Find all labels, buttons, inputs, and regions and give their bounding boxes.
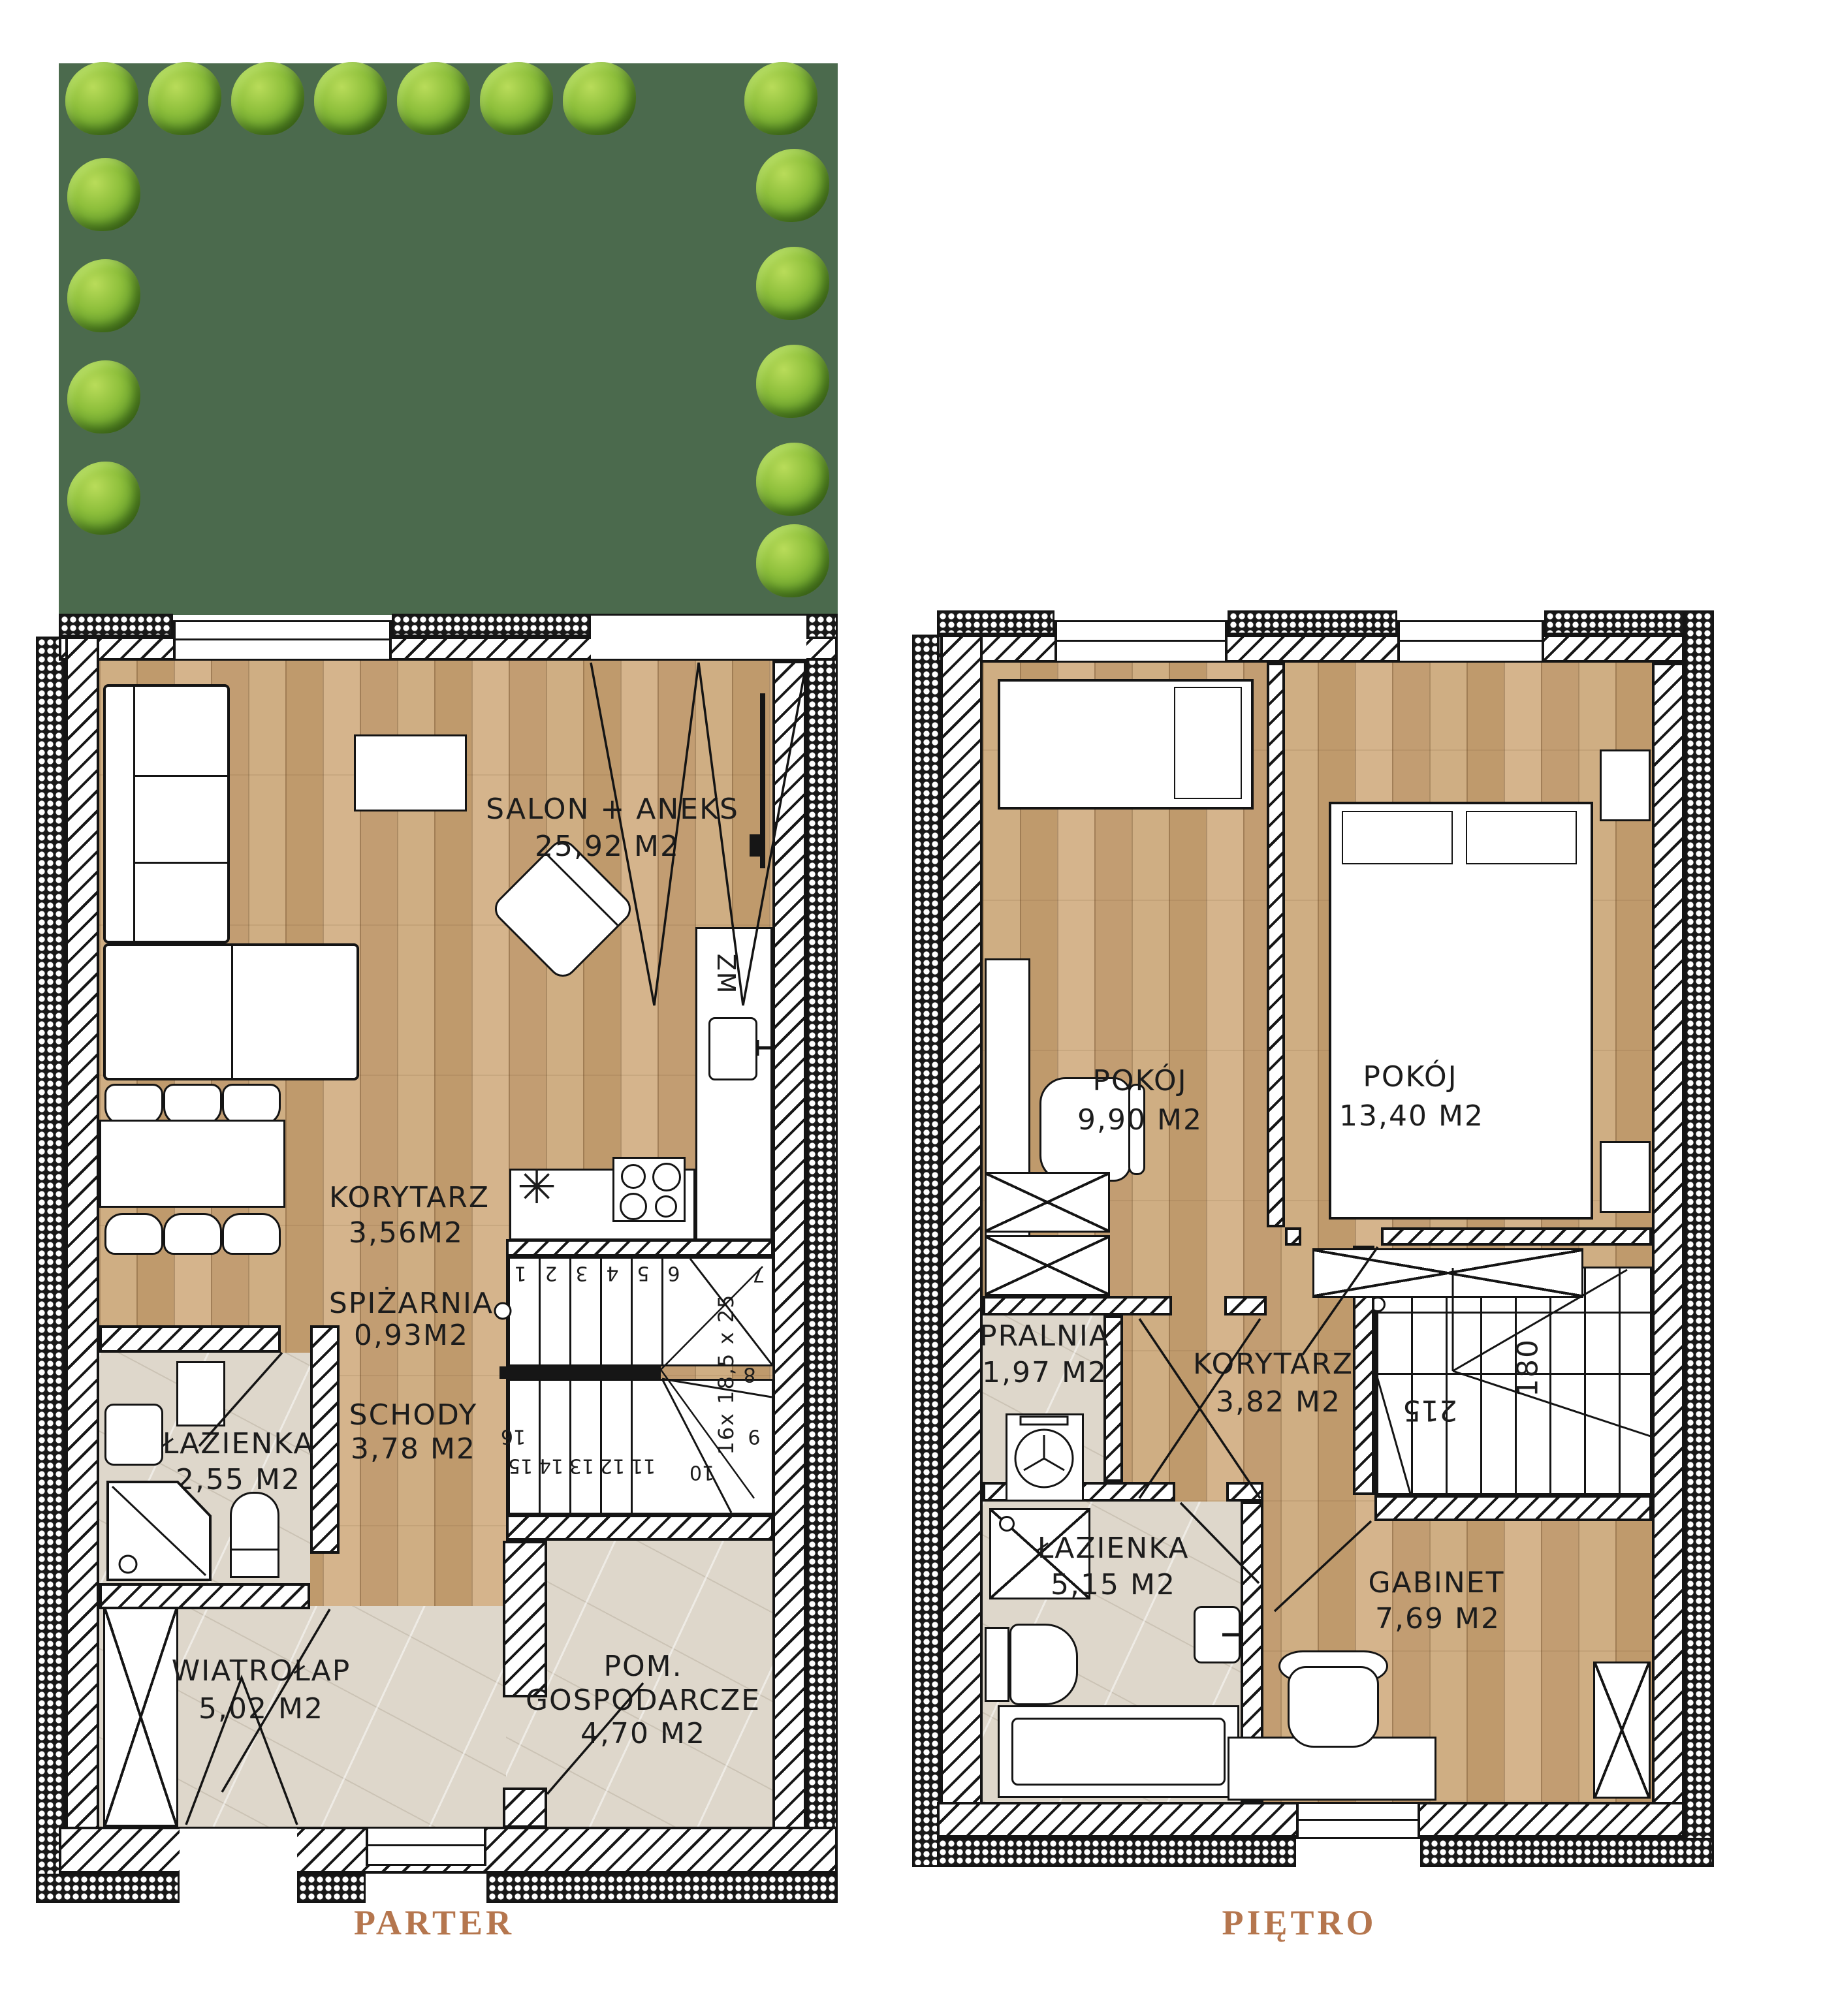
garden-bush — [231, 62, 304, 135]
fridge-symbol-icon: ✳ — [517, 1159, 556, 1214]
room-area-wiatrolap: 5,02 M2 — [198, 1695, 324, 1724]
garden-bush — [67, 158, 140, 231]
garden-bush — [67, 360, 140, 433]
room-area-pokoj1: 9,90 M2 — [1077, 1106, 1203, 1135]
burner-icon — [652, 1163, 681, 1191]
bathtub — [998, 1705, 1239, 1798]
stair-step-number: 1 — [514, 1262, 526, 1285]
garden-bush — [563, 62, 636, 135]
tv-bracket — [750, 834, 760, 857]
room-label-lazienka: ŁAZIENKA — [163, 1430, 315, 1458]
dining-chair — [163, 1213, 222, 1255]
insulation-bottom — [36, 1874, 180, 1903]
staircase-lower-run — [506, 1379, 661, 1515]
garden-bush — [148, 62, 221, 135]
room-label-lazienka2: ŁAZIENKA — [1038, 1534, 1190, 1563]
window-bottom-parter — [366, 1827, 486, 1866]
insulation-top — [1228, 610, 1397, 635]
stair-step-number: 13 — [569, 1455, 594, 1477]
toilet-bowl — [1009, 1624, 1078, 1705]
insulation-right — [806, 614, 838, 1903]
garden-bush — [756, 247, 829, 320]
wall-pokoj1-bottom — [983, 1296, 1172, 1315]
kitchen-stove — [612, 1157, 686, 1222]
toilet-bowl — [230, 1492, 279, 1554]
wardrobe — [1593, 1662, 1651, 1799]
window-top-pokoj1 — [1054, 620, 1228, 663]
room-area-pom: 4,70 M2 — [580, 1720, 706, 1748]
stair-step-number: 11 — [631, 1455, 656, 1477]
garden-bush — [397, 62, 470, 135]
room-label-wiatrolap: WIATROŁAP — [172, 1657, 351, 1686]
garden-bush — [67, 462, 140, 535]
stair-step-number: 12 — [600, 1455, 625, 1477]
office-chair-seat — [1288, 1666, 1379, 1748]
wall-pomgosp-left — [503, 1541, 547, 1697]
bathroom-cabinet — [176, 1361, 225, 1426]
garden-bush — [756, 149, 829, 222]
stair-step-number: 6 — [667, 1262, 680, 1285]
stair-line — [1376, 1312, 1650, 1314]
room-label-pralnia: PRALNIA — [979, 1322, 1110, 1351]
bathtub-inner — [1011, 1718, 1226, 1786]
sofa — [103, 684, 230, 943]
insulation-bottom — [486, 1874, 838, 1903]
garden-bush — [480, 62, 553, 135]
room-area-gabinet: 7,69 M2 — [1375, 1605, 1500, 1633]
room-label-pokoj2: POKÓJ — [1363, 1063, 1457, 1092]
stair-step-number: 3 — [575, 1262, 588, 1285]
insulation-right — [1685, 610, 1714, 1867]
wall-lazienka-top — [1226, 1482, 1263, 1502]
wall-gabinet-top — [1374, 1495, 1652, 1521]
exterior-wall-right — [1652, 663, 1685, 1838]
room-area-pralnia: 1,97 M2 — [982, 1359, 1107, 1387]
chaise-line — [231, 946, 233, 1078]
stair-step-number: 5 — [637, 1262, 649, 1285]
room-label-gabinet: GABINET — [1369, 1569, 1505, 1598]
single-bed — [998, 679, 1254, 810]
garden-area — [59, 63, 838, 615]
entrance-door-opening — [180, 1827, 297, 1874]
burner-icon — [621, 1164, 646, 1189]
room-label-schody: SCHODY — [349, 1401, 478, 1430]
coffee-table — [354, 734, 467, 811]
stair-step-number: 15 — [508, 1455, 533, 1477]
burner-icon — [655, 1195, 677, 1218]
insulation-bottom — [297, 1874, 366, 1903]
nightstand — [1600, 1141, 1651, 1213]
garden-bush — [67, 259, 140, 332]
garden-bush — [756, 443, 829, 516]
room-area-schody: 3,78 M2 — [351, 1435, 476, 1464]
stair-step-number: 2 — [545, 1262, 557, 1285]
wardrobe — [103, 1607, 178, 1827]
insulation-bottom — [937, 1838, 1296, 1867]
tv-icon — [760, 693, 765, 868]
stair-headroom-label: 215 — [1403, 1394, 1457, 1427]
pillow — [1342, 811, 1453, 864]
exterior-wall-top — [937, 635, 1685, 663]
exterior-wall-left — [940, 635, 983, 1838]
wall-room-divider — [1267, 663, 1285, 1227]
room-label-pom1: POM. — [603, 1652, 682, 1681]
wall-pokoj1-bottom — [1224, 1296, 1267, 1315]
wall-bathroom-bottom — [99, 1583, 310, 1609]
room-area-lazienka2: 5,15 M2 — [1051, 1571, 1176, 1599]
room-area-korytarz: 3,56M2 — [349, 1219, 464, 1248]
insulation-left — [912, 635, 940, 1867]
dining-chair — [104, 1213, 163, 1255]
window-bottom-pietro — [1296, 1802, 1420, 1839]
garden-bush — [756, 345, 829, 418]
wall-pokoj2-bottom-stub — [1285, 1227, 1301, 1246]
pillow — [1174, 687, 1242, 799]
washbasin — [1194, 1606, 1241, 1663]
insulation-left — [36, 637, 65, 1903]
stair-step-number: 14 — [539, 1455, 563, 1477]
room-area-pokoj2: 13,40 M2 — [1339, 1102, 1484, 1131]
stair-step-number: 4 — [606, 1262, 618, 1285]
window-top-pokoj2 — [1397, 620, 1544, 663]
room-area-lazienka: 2,55 M2 — [176, 1466, 301, 1494]
insulation-top — [59, 614, 173, 637]
stair-step-number: 9 — [748, 1425, 760, 1448]
staircase-divider — [499, 1366, 661, 1379]
wardrobe — [985, 1235, 1110, 1296]
insulation-bottom — [1420, 1838, 1714, 1867]
washbasin — [104, 1404, 163, 1466]
terrace-door-opening — [591, 614, 806, 661]
room-label-pom2: GOSPODARCZE — [526, 1686, 761, 1715]
wall-stairs-bottom — [506, 1515, 774, 1541]
double-bed — [1329, 802, 1593, 1220]
room-label-korytarz2: KORYTARZ — [1193, 1350, 1354, 1379]
sofa-cushion-line — [133, 775, 228, 777]
room-area-salon: 25,92 M2 — [535, 832, 680, 861]
stair-step-number: 16 — [501, 1425, 526, 1448]
wall-stairs-top — [506, 1239, 774, 1257]
window-top-parter — [173, 620, 392, 661]
floor-title-parter: PARTER — [354, 1902, 515, 1943]
wall-bathroom-right — [310, 1325, 340, 1554]
dining-chair — [222, 1213, 281, 1255]
floor-title-pietro: PIĘTRO — [1222, 1902, 1376, 1943]
room-label-korytarz: KORYTARZ — [329, 1184, 490, 1212]
room-area-korytarz2: 3,82 M2 — [1216, 1388, 1341, 1417]
insulation-top — [937, 610, 1054, 635]
exterior-wall-left — [65, 637, 99, 1874]
stair-step-number: 8 — [743, 1363, 755, 1386]
washing-machine-drum-icon — [1007, 1415, 1081, 1498]
sink-label: ZM — [714, 954, 738, 995]
room-label-pokoj1: POKÓJ — [1092, 1067, 1187, 1095]
sofa-cushion-line — [133, 862, 228, 864]
wall-pokoj2-bottom — [1381, 1227, 1652, 1246]
room-area-spizarnia: 0,93M2 — [354, 1321, 469, 1350]
sofa-backrest-line — [133, 687, 135, 941]
garden-bush — [65, 62, 138, 135]
toilet-tank — [230, 1549, 279, 1578]
stair-headroom-label: 180 — [1512, 1338, 1545, 1397]
exterior-wall-right — [772, 661, 806, 1874]
garden-bush — [756, 524, 829, 597]
stair-step-number: 10 — [690, 1461, 714, 1484]
room-label-salon: SALON + ANEKS — [486, 795, 739, 824]
toilet-tank — [985, 1627, 1009, 1702]
burner-icon — [620, 1193, 647, 1220]
insulation-top — [1544, 610, 1685, 635]
wardrobe — [985, 1172, 1110, 1233]
shower-drain — [999, 1516, 1015, 1532]
stair-dimension-label: 16x 18,5 x 25 — [714, 1293, 738, 1455]
room-label-spizarnia: SPIŻARNIA — [329, 1289, 494, 1318]
garden-bush — [744, 62, 817, 135]
floor-plan-canvas: ✳ ZM SALON + ANEKS 25,92 M2 KORYTARZ 3,5… — [0, 0, 1823, 2016]
sofa-chaise — [103, 943, 359, 1080]
insulation-top — [392, 614, 591, 637]
wall-bathroom-top — [99, 1325, 281, 1353]
garden-bush — [314, 62, 387, 135]
dining-table — [99, 1120, 285, 1208]
washing-machine — [1006, 1413, 1084, 1502]
kitchen-sink — [708, 1017, 757, 1080]
pillow — [1466, 811, 1577, 864]
wardrobe-long — [1312, 1248, 1583, 1298]
wall-pomgosp-left — [503, 1788, 547, 1828]
nightstand — [1600, 749, 1651, 821]
stair-step-number: 7 — [752, 1263, 765, 1286]
